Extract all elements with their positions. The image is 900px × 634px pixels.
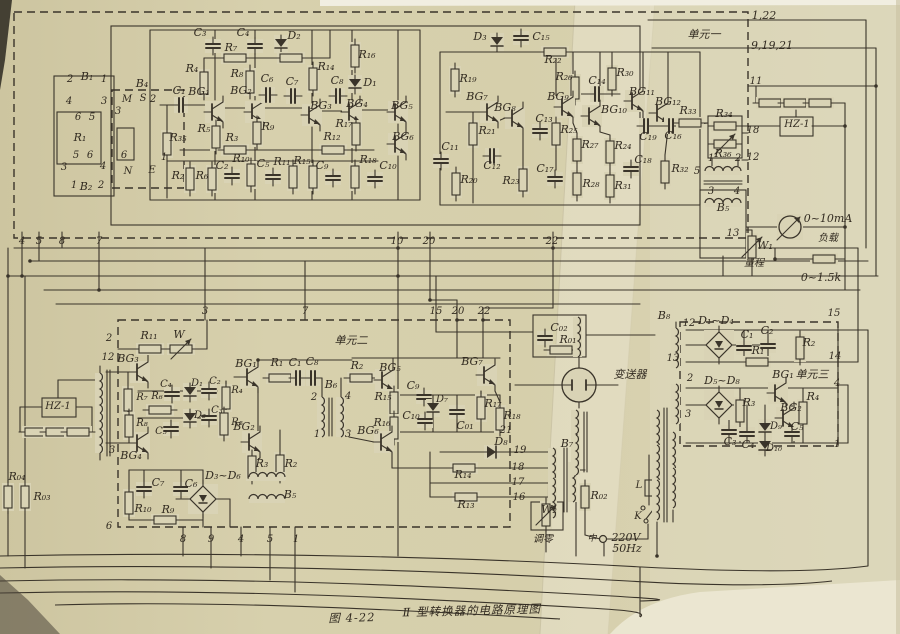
component-label: 量程 xyxy=(744,257,766,269)
component-label: 变送器 xyxy=(614,368,648,381)
component-label: S xyxy=(140,93,147,104)
component-label: R₆ xyxy=(195,169,209,182)
component-label: R₁ xyxy=(270,356,284,369)
component-label: 1,22 xyxy=(752,9,777,22)
junction-dot xyxy=(843,124,847,128)
component-label: R₅ xyxy=(197,122,211,135)
component-label: BG₁₁ xyxy=(628,85,655,98)
component-label: C₅ xyxy=(791,420,804,433)
component-label: R₀₂ xyxy=(589,489,607,502)
component-label: BG₅ xyxy=(390,99,413,112)
component-label: 3 xyxy=(708,186,714,197)
component-label: C₆ xyxy=(185,477,198,490)
paper-right-lighter xyxy=(650,0,900,634)
component-label: C₁ xyxy=(289,356,302,369)
component-label: R₂₄ xyxy=(613,139,631,152)
component-label: R₀₃ xyxy=(32,490,50,503)
component-label: C₄ xyxy=(237,26,250,39)
component-label: R₁₄ xyxy=(316,60,334,73)
component-label: 1 xyxy=(314,429,320,440)
component-label: K xyxy=(633,511,642,522)
component-label: D₉ xyxy=(769,421,782,432)
component-label: W₂ xyxy=(541,503,557,516)
component-label: BG₁ xyxy=(187,85,209,98)
component-label: R₄ xyxy=(806,390,820,403)
component-label: R₄ xyxy=(185,62,199,75)
component-label: R₁₁ xyxy=(139,329,157,342)
unit-title-3: 单元三 xyxy=(796,368,830,381)
scanned-schematic-page: 2B₁14365R₁56341B₂2B₄MS236NE1C₃C₄D₂R₇R₁₆R… xyxy=(0,0,900,634)
component-label: C₄ xyxy=(742,438,755,451)
component-label: 1 xyxy=(161,152,167,163)
component-label: L xyxy=(635,480,643,491)
component-label: 1 xyxy=(101,74,107,85)
component-label: BG₇ xyxy=(465,90,488,103)
component-label: 16 xyxy=(513,492,526,503)
component-label: 6 xyxy=(75,112,82,123)
component-label: R₈ xyxy=(230,67,244,80)
component-label: R₃ xyxy=(742,396,756,409)
component-label: BG₅ xyxy=(378,361,401,374)
component-label: 20 xyxy=(451,306,465,317)
component-label: R₁₆ xyxy=(357,48,376,61)
component-label: D₅~D₈ xyxy=(703,374,740,387)
component-label: C₁₈ xyxy=(634,153,652,166)
component-label: 10 xyxy=(391,236,404,247)
component-label: B₈ xyxy=(657,309,671,322)
junction-dot xyxy=(843,225,847,229)
component-label: R₁₇ xyxy=(334,117,353,130)
component-label: 6 xyxy=(87,150,94,161)
component-label: D₁₀ xyxy=(765,443,782,454)
component-label: 负载 xyxy=(818,232,840,244)
component-label: R₁₁ xyxy=(272,155,290,168)
component-label: C₁ xyxy=(741,328,754,341)
component-label: 1 xyxy=(293,534,299,545)
component-label: HZ-1 xyxy=(783,119,809,130)
component-label: R₁₈ xyxy=(502,409,521,422)
component-label: W₁ xyxy=(757,239,773,252)
component-label: R₂₀ xyxy=(459,173,478,186)
component-label: 12 xyxy=(683,318,696,329)
component-label: W xyxy=(173,328,186,341)
component-label: 5 xyxy=(36,236,42,247)
component-label: 3 xyxy=(202,306,208,317)
component-label: C₁₁ xyxy=(441,140,458,153)
component-label: R₂₅ xyxy=(559,123,578,136)
component-label: 5 xyxy=(73,150,79,161)
component-label: R₂₆ xyxy=(554,70,573,83)
component-label: 5 xyxy=(694,166,700,177)
component-label: 12 xyxy=(102,352,115,363)
component-label: BG₆ xyxy=(356,424,379,437)
scan-edge-top-strip xyxy=(320,0,900,6)
component-label: R₁₅ xyxy=(373,390,392,403)
component-label: D₂ xyxy=(193,410,206,421)
component-label: C₈ xyxy=(306,355,319,368)
component-label: C₂ xyxy=(761,324,774,337)
component-label: 4 xyxy=(344,391,351,402)
component-label: C₈ xyxy=(331,74,344,87)
component-label: C₃ xyxy=(194,26,207,39)
component-label: 2 xyxy=(149,94,156,105)
component-label: 20 xyxy=(422,236,436,247)
component-label: C₂ xyxy=(216,159,229,172)
component-label: C₂ xyxy=(209,376,221,387)
component-label: 8 xyxy=(180,534,186,545)
component-label: B₅ xyxy=(283,488,297,501)
component-label: D₈ xyxy=(493,435,508,448)
component-label: 19 xyxy=(514,445,527,456)
component-label: 4 xyxy=(18,236,25,247)
component-label: 13 xyxy=(727,228,740,239)
component-label: R₁₃ xyxy=(456,498,474,511)
component-label: 9,19,21 xyxy=(751,39,793,52)
component-label: 2 xyxy=(105,333,112,344)
component-label: BG₄ xyxy=(119,449,141,462)
component-label: 中 xyxy=(587,533,597,544)
component-label: 4 xyxy=(99,161,106,172)
component-label: C₁₅ xyxy=(532,30,550,43)
component-label: 3 xyxy=(61,162,67,173)
component-label: 0~1.5k xyxy=(801,271,842,284)
component-label: BG₁ xyxy=(234,357,256,370)
component-label: R₁₅ xyxy=(292,154,311,167)
component-label: HZ-1 xyxy=(44,401,70,412)
component-label: R₉ xyxy=(261,120,275,133)
component-label: R₁₀ xyxy=(231,152,250,165)
component-label: 18 xyxy=(512,462,525,473)
component-label: 5 xyxy=(267,534,273,545)
component-label: C₁₆ xyxy=(664,129,682,142)
component-label: 6 xyxy=(106,521,113,532)
junction-dot xyxy=(6,274,10,278)
component-label: 4 xyxy=(237,534,244,545)
component-label: C₁ xyxy=(173,84,186,97)
component-label: R₁₄ xyxy=(453,468,471,481)
junction-dot xyxy=(97,288,101,292)
component-label: 9 xyxy=(208,534,215,545)
component-label: 11 xyxy=(750,76,763,87)
component-label: BG₁₂ xyxy=(654,95,681,108)
component-label: C₇ xyxy=(152,476,165,489)
component-label: R₃ xyxy=(225,131,239,144)
component-label: R₂ xyxy=(802,336,816,349)
component-label: 22 xyxy=(477,306,491,317)
component-label: 7 xyxy=(302,306,309,317)
unit-title-2: 单元二 xyxy=(335,334,369,347)
component-label: 14 xyxy=(829,351,842,362)
component-label: R₁₈ xyxy=(358,153,377,166)
component-label: R₃₆ xyxy=(713,147,732,160)
component-label: D₁ xyxy=(362,76,376,89)
caption-figure-number: 图 4-22 xyxy=(328,610,375,625)
component-label: B₄ xyxy=(135,77,149,90)
component-label: 8 xyxy=(59,236,65,247)
component-label: 1 xyxy=(834,439,840,450)
component-label: C₁₄ xyxy=(588,74,605,87)
junction-dot xyxy=(874,84,878,88)
component-label: 50Hz xyxy=(612,542,642,555)
component-label: 13 xyxy=(667,353,680,364)
component-label: 2 xyxy=(66,74,73,85)
component-label: BG₁₀ xyxy=(600,103,627,116)
junction-dot xyxy=(773,257,777,261)
component-label: R₁₀ xyxy=(133,502,152,515)
component-label: R₆ xyxy=(150,391,163,402)
component-label: R₂₁ xyxy=(477,124,495,137)
component-label: BG₃ xyxy=(309,99,331,112)
component-label: B₁ xyxy=(80,70,94,83)
component-label: R₁₇ xyxy=(483,397,502,410)
component-label: BG₂ xyxy=(229,84,251,97)
component-label: D₁ xyxy=(190,378,203,389)
component-label: C₄ xyxy=(160,379,172,390)
component-label: C₆ xyxy=(261,72,274,85)
component-label: C₅ xyxy=(257,157,270,170)
component-label: 2 xyxy=(686,373,693,384)
component-label: BG₄ xyxy=(345,97,367,110)
component-label: B₅ xyxy=(716,201,730,214)
component-label: R₁₂ xyxy=(322,130,340,143)
component-label: R₃₀ xyxy=(615,66,634,79)
component-label: R₉ xyxy=(161,503,175,516)
component-label: BG₁ xyxy=(771,368,793,381)
component-label: C₃ xyxy=(211,405,223,416)
component-label: R₁ xyxy=(751,344,765,357)
component-label: D₇ xyxy=(435,394,448,405)
component-label: B₂ xyxy=(79,180,93,193)
unit-title-1: 单元一 xyxy=(688,28,722,41)
component-label: 4 xyxy=(733,186,740,197)
junction-dot xyxy=(655,554,659,558)
component-label: 2 xyxy=(97,180,104,191)
component-label: 2 xyxy=(734,153,741,164)
component-label: BG₂ xyxy=(232,420,254,433)
component-label: 0~10mA xyxy=(804,212,853,225)
component-label: D₂ xyxy=(286,29,300,42)
component-label: C₉ xyxy=(407,379,420,392)
component-label: 12 xyxy=(747,152,760,163)
component-label: C₅ xyxy=(155,426,167,437)
component-label: 6 xyxy=(121,150,128,161)
component-label: R₃₄ xyxy=(714,107,732,120)
schematic: 2B₁14365R₁56341B₂2B₄MS236NE1C₃C₄D₂R₇R₁₆R… xyxy=(0,0,900,634)
junction-dot xyxy=(20,274,24,278)
component-label: 2 xyxy=(310,392,317,403)
component-label: R₃₃ xyxy=(678,104,696,117)
component-label: 17 xyxy=(512,477,525,488)
component-label: C₃ xyxy=(724,435,737,448)
component-label: C₉ xyxy=(316,159,329,172)
component-label: C₁₀ xyxy=(402,409,420,422)
component-label: C₀₁ xyxy=(456,419,473,432)
component-label: E xyxy=(147,165,156,176)
component-label: C₇ xyxy=(286,75,299,88)
component-label: R₄ xyxy=(230,385,243,396)
component-label: C₁₃ xyxy=(535,112,552,125)
component-label: 4 xyxy=(65,96,72,107)
component-label: C₁₂ xyxy=(483,159,500,172)
component-label: BG₂ xyxy=(779,401,801,414)
component-label: 1 xyxy=(71,180,77,191)
component-label: D₁~D₄ xyxy=(697,314,734,327)
component-label: R₀₁ xyxy=(558,333,576,346)
component-label: N xyxy=(123,166,134,177)
component-label: 3 xyxy=(345,429,351,440)
component-label: D₃~D₆ xyxy=(204,469,241,482)
component-label: R₃ xyxy=(255,457,269,470)
junction-dot xyxy=(396,274,400,278)
component-label: R₂₂ xyxy=(543,53,561,66)
component-label: M xyxy=(121,94,133,105)
component-label: R₀₄ xyxy=(7,470,25,483)
component-label: BG₉ xyxy=(546,90,569,103)
component-label: C₁₇ xyxy=(536,162,554,175)
component-label: R₂ xyxy=(284,457,298,470)
component-label: 22 xyxy=(545,236,559,247)
component-label: R₂₇ xyxy=(580,138,599,151)
component-label: 3 xyxy=(101,96,107,107)
component-label: 4 xyxy=(833,378,840,389)
component-label: BG₆ xyxy=(391,130,414,143)
component-label: 7 xyxy=(96,236,103,247)
junction-dot xyxy=(428,298,432,302)
component-label: R₃₁ xyxy=(613,179,631,192)
component-label: R₂ xyxy=(171,169,185,182)
component-label: R₁₉ xyxy=(458,72,477,85)
scan-edge-right xyxy=(896,0,900,634)
component-label: 3 xyxy=(109,445,115,456)
component-label: B₆ xyxy=(324,378,338,391)
junction-dot xyxy=(28,259,32,263)
component-label: R₂ xyxy=(350,359,364,372)
component-label: 3 xyxy=(685,409,691,420)
component-label: R₂₃ xyxy=(501,174,519,187)
component-label: C₁₀ xyxy=(379,159,397,172)
component-label: R₇ xyxy=(224,41,238,54)
component-label: 3 xyxy=(115,106,121,117)
component-label: R₇ xyxy=(135,392,148,403)
component-label: 15 xyxy=(430,306,443,317)
terminal-symbol xyxy=(600,536,607,543)
component-label: 15 xyxy=(828,308,841,319)
component-label: C₁₉ xyxy=(639,130,657,143)
component-label: BG₇ xyxy=(460,355,483,368)
component-label: R₈ xyxy=(135,418,148,429)
component-label: B₇ xyxy=(560,437,574,450)
component-label: R₃₅ xyxy=(168,131,187,144)
component-label: R₁ xyxy=(73,131,87,144)
component-label: 调零 xyxy=(533,533,554,545)
component-label: R₂₈ xyxy=(581,177,600,190)
component-label: R₃₂ xyxy=(670,162,688,175)
component-label: 18 xyxy=(747,125,760,136)
component-label: BG₈ xyxy=(493,101,516,114)
component-label: 5 xyxy=(89,112,95,123)
component-label: BG₃ xyxy=(116,352,138,365)
component-label: 1 xyxy=(708,153,714,164)
component-label: D₃ xyxy=(472,30,486,43)
